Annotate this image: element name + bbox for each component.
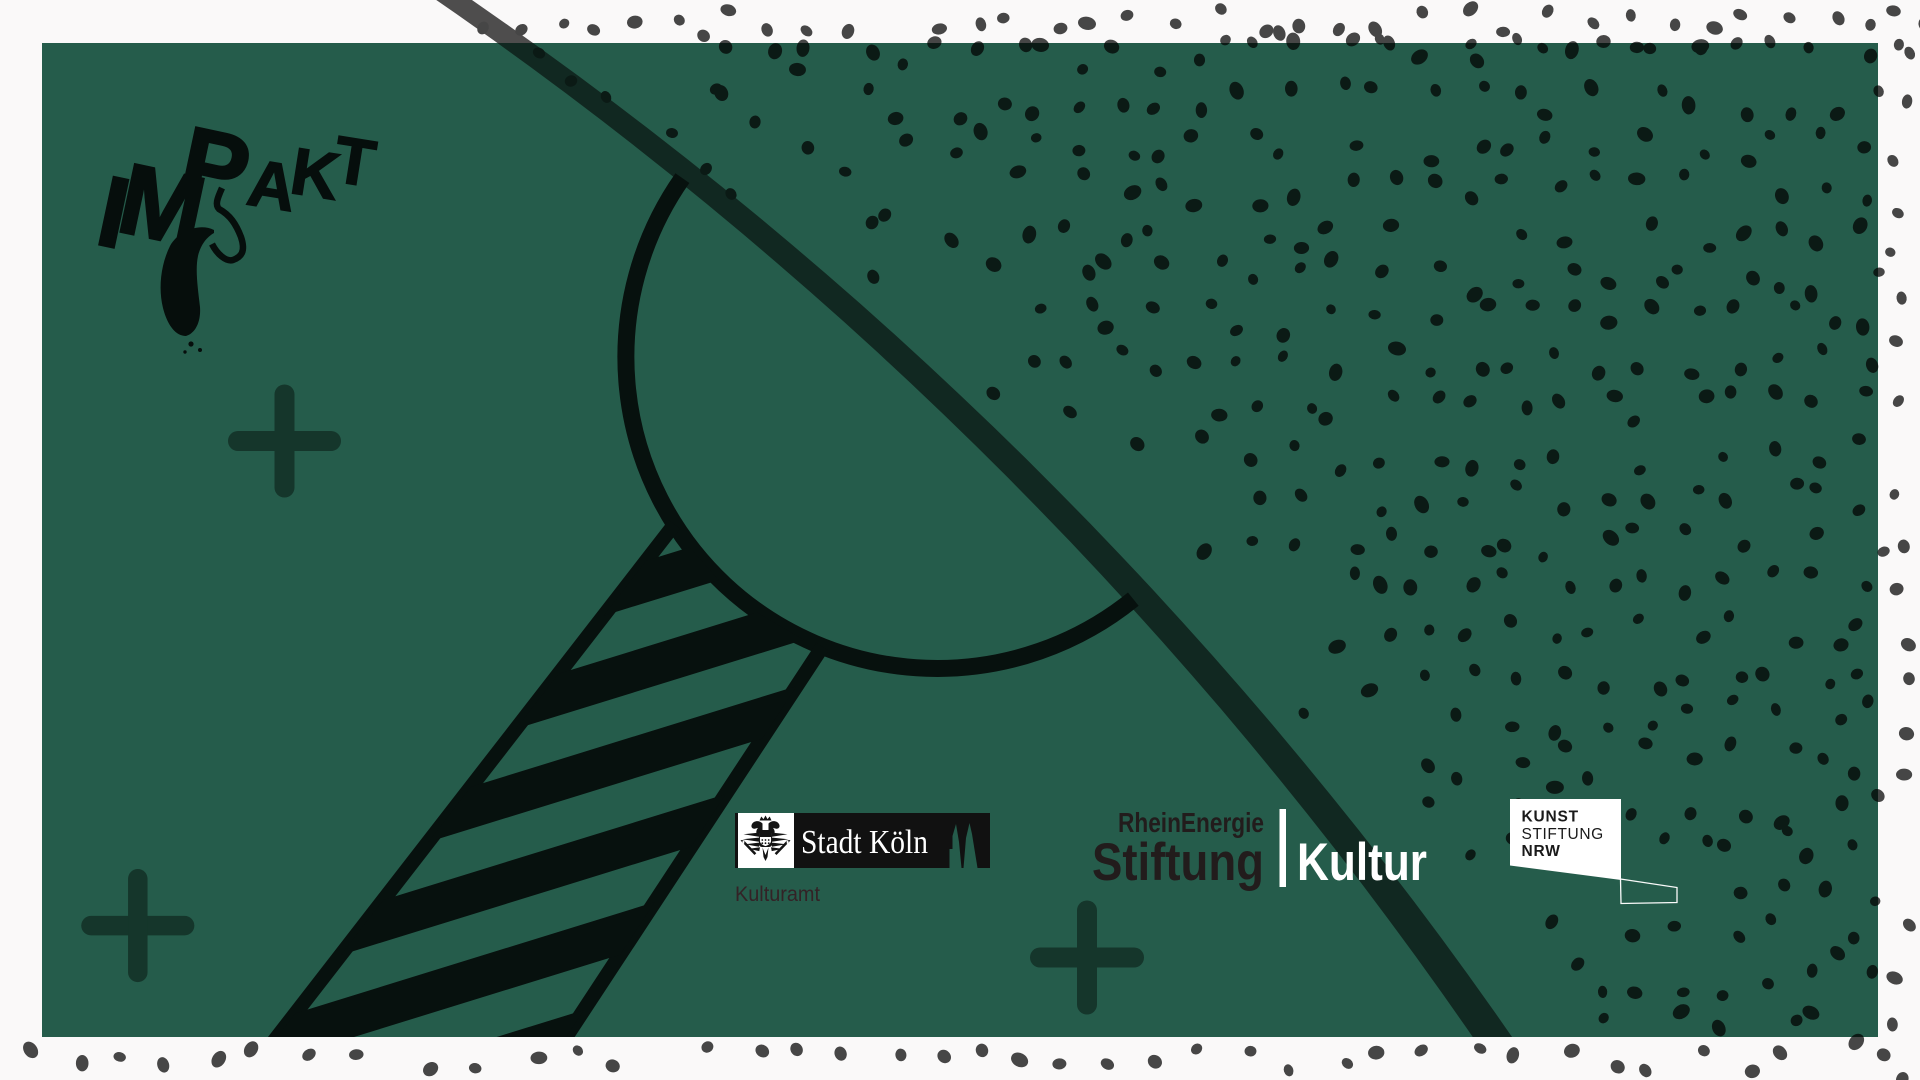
svg-text:Stadt Köln: Stadt Köln xyxy=(801,824,928,861)
svg-text:KUNST: KUNST xyxy=(1522,809,1579,826)
svg-text:Stiftung: Stiftung xyxy=(1092,833,1264,892)
svg-text:Kultur: Kultur xyxy=(1297,833,1427,892)
svg-text:NRW: NRW xyxy=(1522,843,1561,860)
svg-text:STIFTUNG: STIFTUNG xyxy=(1522,826,1604,843)
svg-text:Kulturamt: Kulturamt xyxy=(735,883,820,906)
